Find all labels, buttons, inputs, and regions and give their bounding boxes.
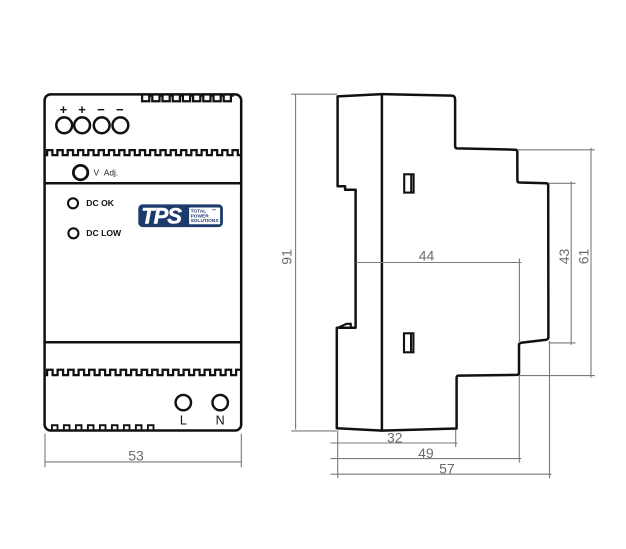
svg-text:−: −	[116, 102, 124, 117]
svg-text:L: L	[180, 413, 187, 427]
svg-text:+: +	[60, 102, 68, 117]
svg-text:V Adj.: V Adj.	[94, 168, 119, 178]
svg-text:+: +	[78, 102, 86, 117]
svg-text:™: ™	[212, 208, 217, 213]
svg-text:TPS: TPS	[141, 203, 182, 228]
svg-text:57: 57	[439, 460, 455, 476]
svg-text:SOLUTIONS: SOLUTIONS	[191, 218, 220, 224]
svg-text:−: −	[97, 102, 105, 117]
svg-text:DC OK: DC OK	[86, 198, 114, 208]
svg-text:32: 32	[387, 430, 403, 446]
svg-text:N: N	[216, 413, 225, 427]
svg-text:44: 44	[419, 247, 435, 263]
svg-text:DC LOW: DC LOW	[86, 228, 122, 238]
svg-text:43: 43	[556, 249, 572, 265]
svg-text:91: 91	[278, 249, 294, 265]
svg-text:49: 49	[418, 445, 434, 461]
svg-text:61: 61	[576, 249, 592, 265]
svg-text:53: 53	[128, 447, 144, 463]
